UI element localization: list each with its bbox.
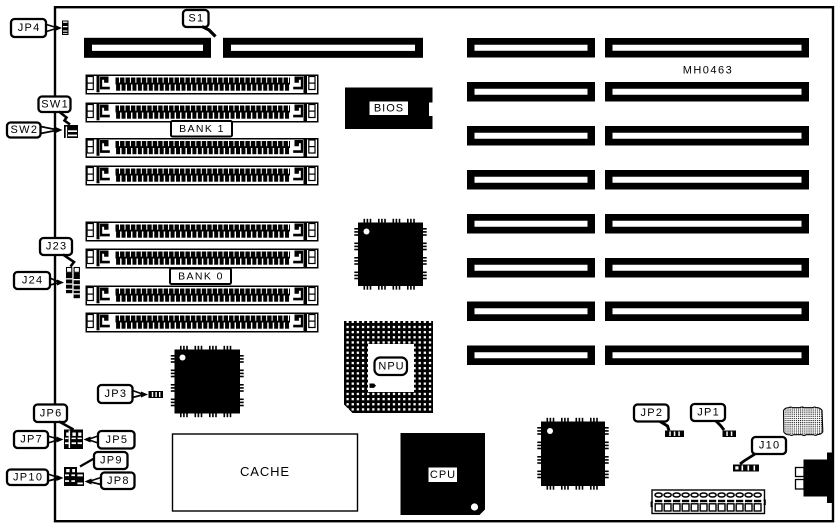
svg-text:JP5: JP5: [105, 434, 128, 446]
svg-text:CACHE: CACHE: [240, 464, 290, 479]
svg-text:JP1: JP1: [697, 407, 720, 419]
svg-text:JP6: JP6: [40, 407, 63, 419]
svg-text:BIOS: BIOS: [374, 103, 404, 115]
svg-text:JP2: JP2: [640, 407, 663, 419]
svg-text:JP10: JP10: [13, 471, 43, 483]
svg-text:BANK 0: BANK 0: [178, 271, 224, 283]
svg-text:S1: S1: [188, 13, 204, 25]
svg-text:J24: J24: [22, 275, 44, 287]
svg-text:J23: J23: [46, 241, 68, 253]
svg-text:MH0463: MH0463: [683, 65, 734, 77]
svg-text:J10: J10: [759, 440, 781, 452]
svg-text:BANK 1: BANK 1: [179, 123, 225, 135]
svg-text:JP3: JP3: [104, 388, 127, 400]
svg-text:NPU: NPU: [378, 361, 404, 373]
svg-text:SW2: SW2: [11, 124, 39, 136]
svg-text:CPU: CPU: [430, 469, 456, 481]
svg-text:SW1: SW1: [41, 98, 69, 110]
svg-text:JP8: JP8: [107, 475, 130, 487]
svg-text:JP4: JP4: [18, 22, 41, 34]
svg-text:JP7: JP7: [20, 434, 43, 446]
svg-text:JP9: JP9: [100, 455, 123, 467]
